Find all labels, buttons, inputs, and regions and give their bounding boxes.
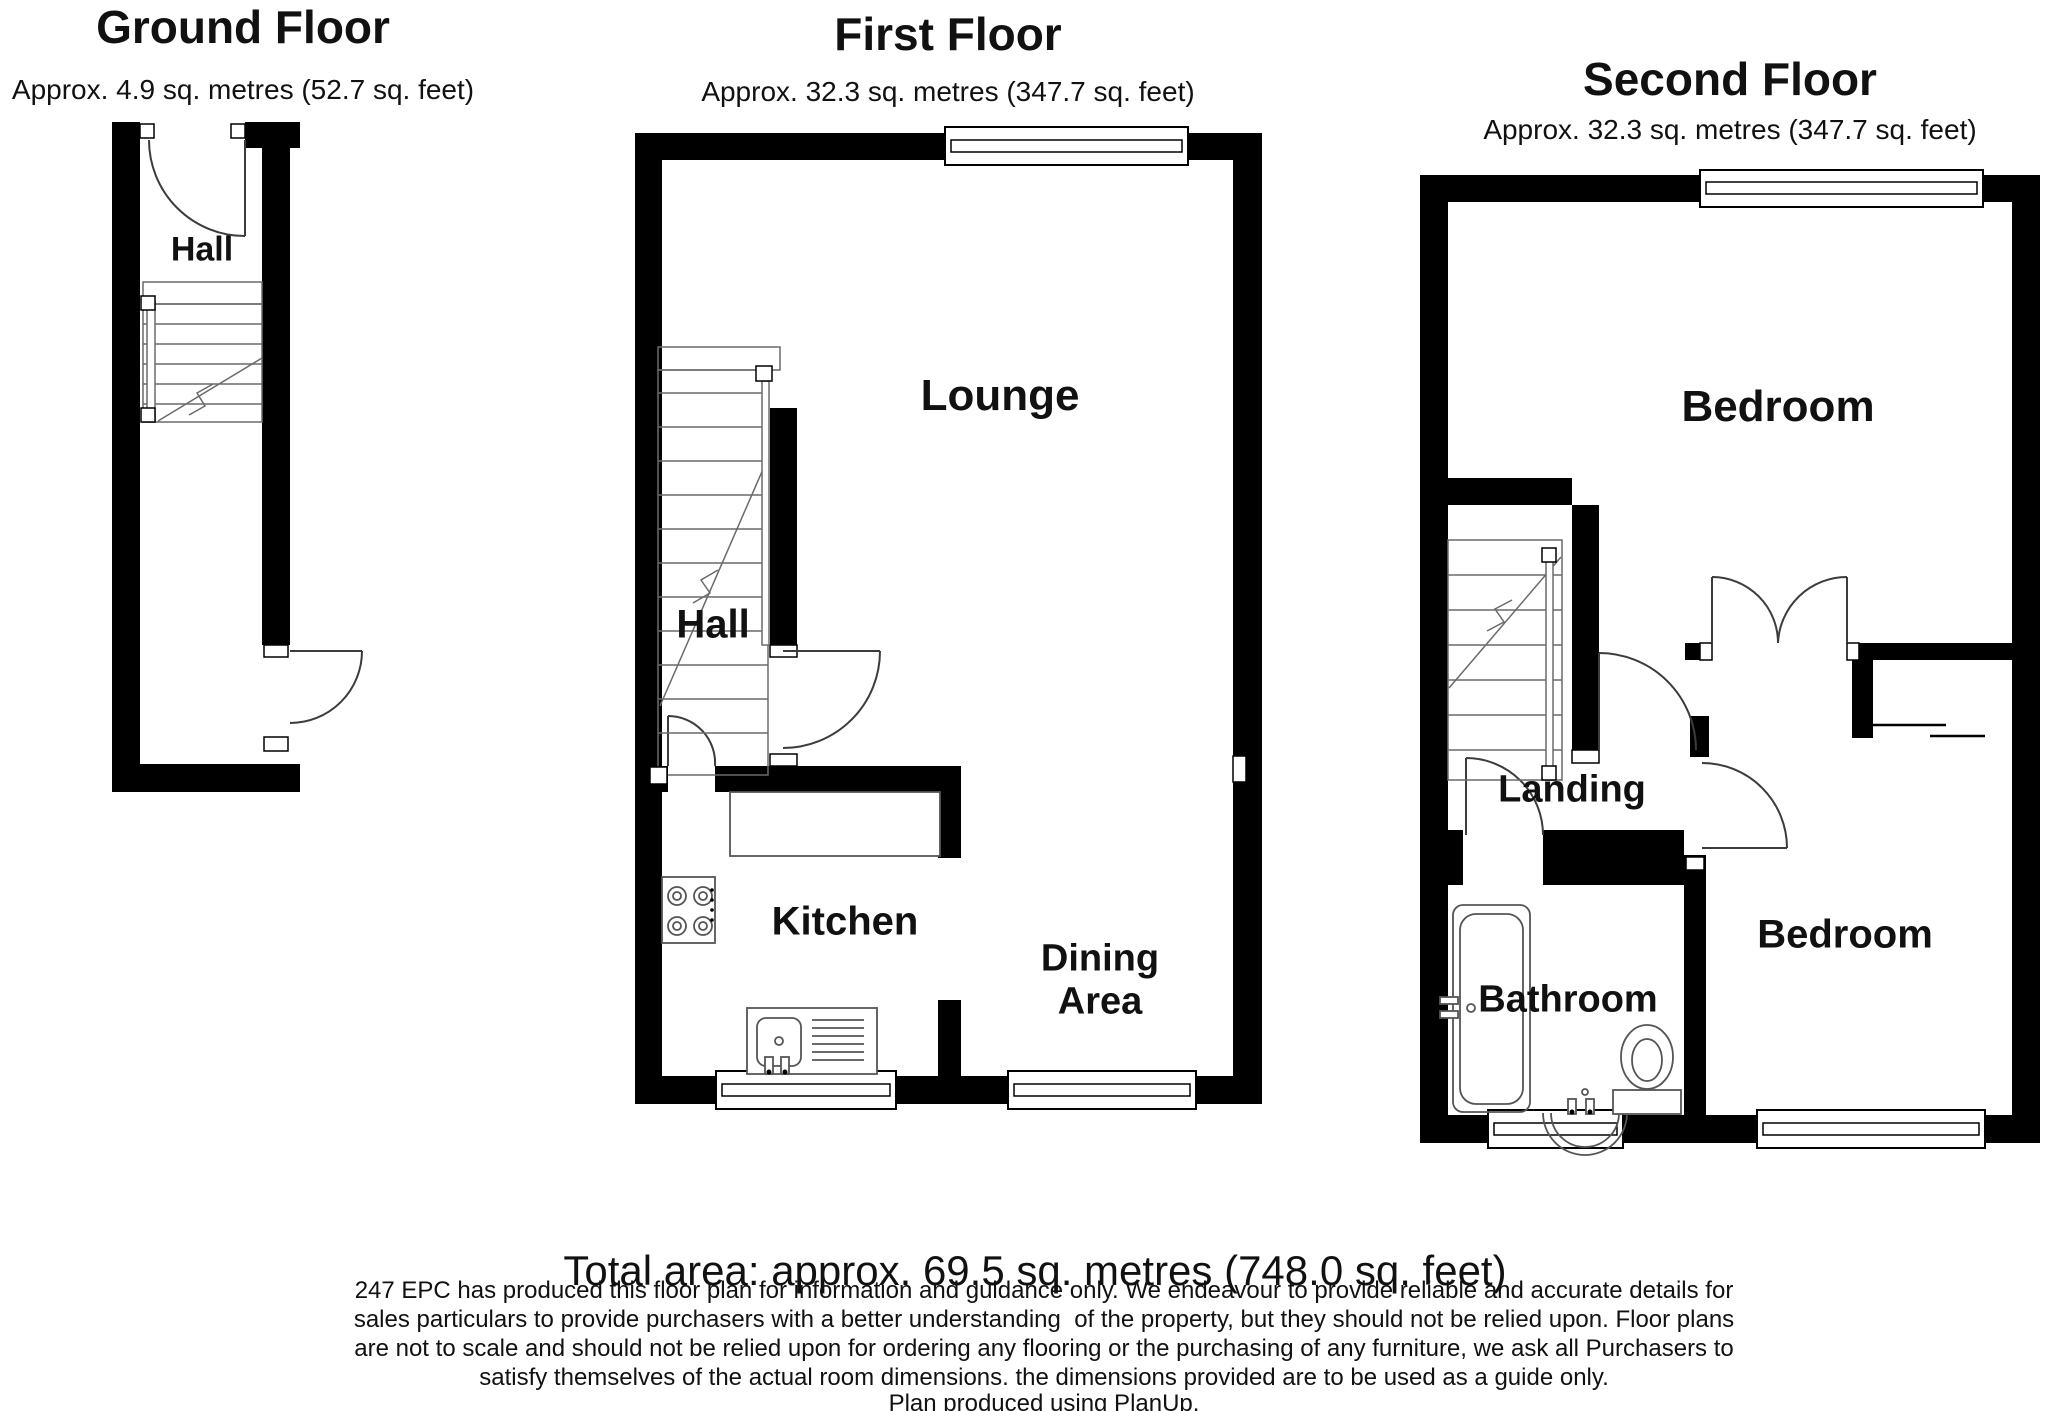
ground-floor-area: Approx. 4.9 sq. metres (52.7 sq. feet) [12, 74, 474, 106]
room-label-dining-area: Dining Area [1013, 937, 1188, 1022]
door-jamb [1686, 857, 1704, 870]
room-label-bedroom-bottom: Bedroom [1757, 913, 1933, 958]
door-jamb [1700, 643, 1712, 660]
second-floor-title: Second Floor [1583, 52, 1877, 106]
room-label-hall-first: Hall [676, 603, 749, 648]
first-floor-area: Approx. 32.3 sq. metres (347.7 sq. feet) [701, 76, 1194, 108]
floorplan-page: Ground Floor Approx. 4.9 sq. metres (52.… [0, 0, 2048, 1411]
door-jamb [1847, 643, 1859, 660]
room-label-bedroom-top: Bedroom [1681, 382, 1874, 432]
second-floor-area: Approx. 32.3 sq. metres (347.7 sq. feet) [1483, 114, 1976, 146]
window [716, 1071, 896, 1109]
kitchen-counter [730, 792, 940, 856]
kitchen-door-arc [668, 716, 715, 766]
room-label-landing: Landing [1498, 769, 1646, 812]
ground-floor-title: Ground Floor [96, 0, 390, 54]
disclaimer-line-1: 247 EPC has produced this floor plan for… [355, 1277, 1734, 1305]
bedroom-door-arc [1702, 763, 1787, 848]
sliding-door [1873, 725, 1985, 736]
rear-door-arc [290, 651, 362, 723]
landing-door-arc [1599, 653, 1696, 750]
first-floor-title: First Floor [834, 7, 1061, 61]
hall-door-arc [783, 651, 880, 748]
door-jamb [264, 737, 288, 751]
ground-floor-plan [112, 122, 362, 792]
ground-floor-stairs [141, 282, 262, 422]
disclaimer-line-3: are not to scale and should not be relie… [354, 1335, 1733, 1363]
room-label-kitchen: Kitchen [772, 900, 919, 945]
room-label-lounge: Lounge [921, 371, 1080, 421]
credit-text: Plan produced using PlanUp. [889, 1390, 1200, 1411]
wardrobe-door-left-arc [1712, 577, 1778, 643]
sink-unit [747, 1008, 877, 1075]
window [1757, 1110, 1985, 1148]
door-jamb [1572, 750, 1599, 763]
window [1008, 1071, 1196, 1109]
window [945, 127, 1188, 165]
door-jamb [140, 124, 154, 138]
second-floor-stairs [1448, 540, 1562, 780]
wall-notch [1233, 756, 1246, 782]
disclaimer-line-2: sales particulars to provide purchasers … [354, 1306, 1734, 1334]
door-jamb [231, 124, 245, 138]
hob [662, 877, 715, 943]
door-jamb [264, 645, 288, 657]
entrance-door-arc [149, 140, 245, 236]
wardrobe-door-right-arc [1778, 577, 1847, 643]
ground-floor-walls [112, 122, 300, 792]
room-label-hall-ground: Hall [171, 231, 233, 270]
first-floor-stairs [650, 347, 780, 784]
room-label-bathroom: Bathroom [1478, 979, 1657, 1022]
window [1700, 170, 1983, 207]
floorplan-drawing [0, 0, 2048, 1411]
door-jamb [770, 754, 797, 766]
disclaimer-line-4: satisfy themselves of the actual room di… [479, 1364, 1609, 1392]
toilet [1613, 1025, 1681, 1114]
